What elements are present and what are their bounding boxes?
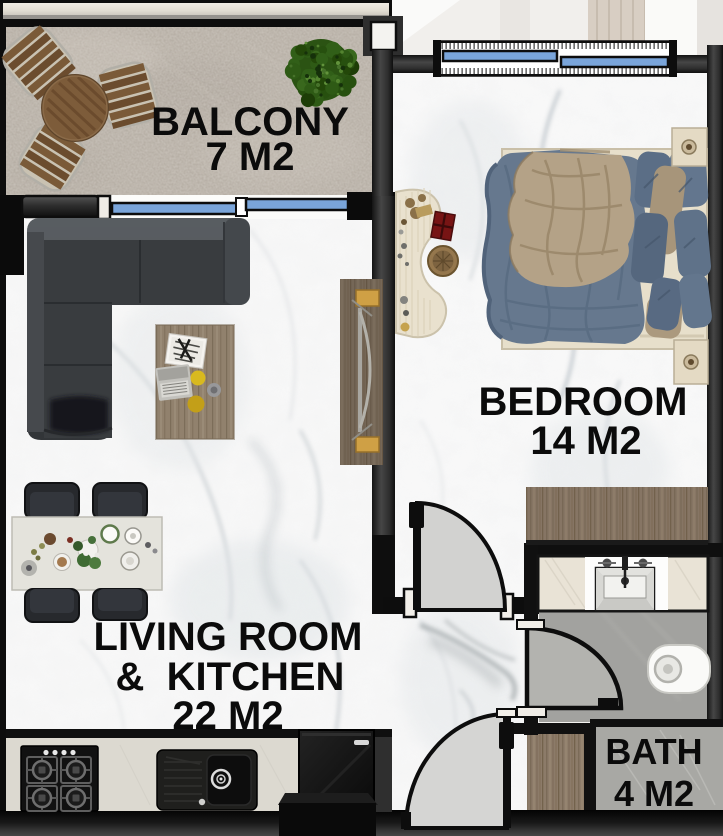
svg-text:22 M2: 22 M2 <box>172 694 283 738</box>
svg-text:4 M2: 4 M2 <box>614 773 694 814</box>
svg-text:BATH: BATH <box>605 731 702 772</box>
svg-text:LIVING ROOM: LIVING ROOM <box>94 615 363 659</box>
svg-text:& KITCHEN: & KITCHEN <box>116 655 345 699</box>
svg-text:7 M2: 7 M2 <box>206 135 295 179</box>
svg-text:14 M2: 14 M2 <box>530 419 641 463</box>
svg-text:BEDROOM: BEDROOM <box>479 380 688 424</box>
